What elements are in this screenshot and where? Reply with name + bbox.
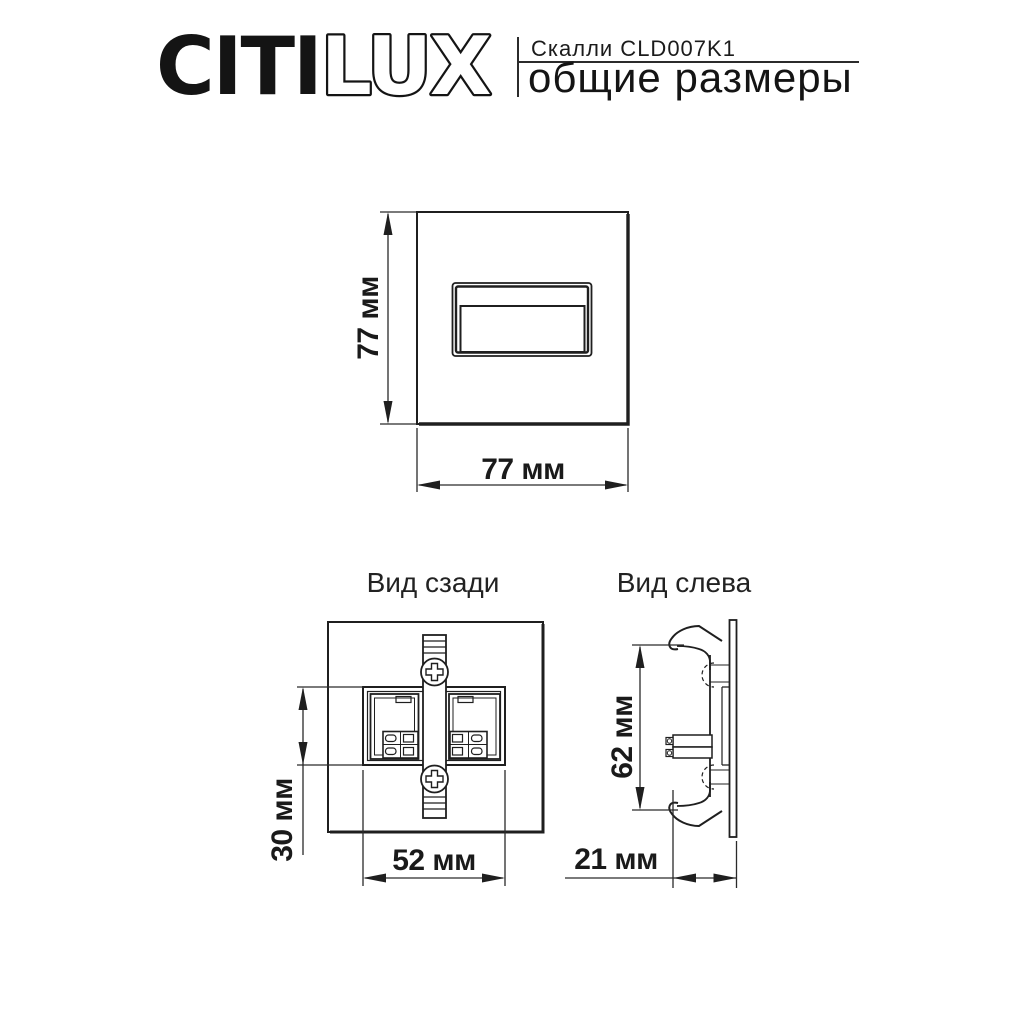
left-plate-edge (730, 620, 737, 837)
arrow-right-icon (714, 874, 737, 883)
arrow-right-icon (482, 874, 505, 883)
left-housing (702, 655, 730, 797)
spring-clip-top (669, 626, 722, 670)
arrow-down-icon (636, 787, 645, 810)
rear-width-label: 52 мм (392, 844, 476, 878)
rear-height-label: 30 мм (266, 778, 300, 862)
rear-view-title: Вид сзади (367, 567, 500, 599)
technical-drawing (0, 0, 1024, 1024)
hidden-arc-bottom (702, 765, 714, 789)
arrow-up-icon (384, 212, 393, 235)
hidden-arc-top (702, 663, 714, 687)
rear-height-dimension (297, 687, 363, 855)
left-terminal-connector (666, 735, 712, 758)
front-height-label: 77 мм (352, 276, 386, 360)
front-window-outer (453, 283, 592, 356)
left-depth-label: 21 мм (574, 843, 658, 877)
arrow-down-icon (384, 401, 393, 424)
arrow-right-icon (605, 481, 628, 490)
phillips-screw-top-icon (421, 659, 448, 686)
rear-slot-right (458, 697, 473, 703)
arrow-down-icon (299, 742, 308, 765)
terminal-block-left (383, 732, 418, 759)
spring-clip-bottom (669, 782, 722, 826)
arrow-left-icon (363, 874, 386, 883)
phillips-screw-bottom-icon (421, 766, 448, 793)
drawing-sheet: CITILUX Скалли CLD007K1 общие размеры (0, 0, 1024, 1024)
left-view-title: Вид слева (617, 567, 751, 599)
front-view-drawing (380, 212, 628, 492)
arrow-left-icon (673, 874, 696, 883)
left-height-label: 62 мм (606, 695, 640, 779)
arrow-left-icon (417, 481, 440, 490)
rear-slot-left (396, 697, 411, 703)
arrow-up-icon (636, 645, 645, 668)
terminal-block-right (450, 732, 487, 759)
front-faceplate-shadow-edge (419, 214, 628, 424)
arrow-up-icon (299, 687, 308, 710)
front-width-label: 77 мм (481, 453, 565, 487)
front-window-diffuser (461, 306, 585, 352)
front-window-bezel (456, 287, 588, 353)
front-faceplate-outline (417, 212, 628, 424)
